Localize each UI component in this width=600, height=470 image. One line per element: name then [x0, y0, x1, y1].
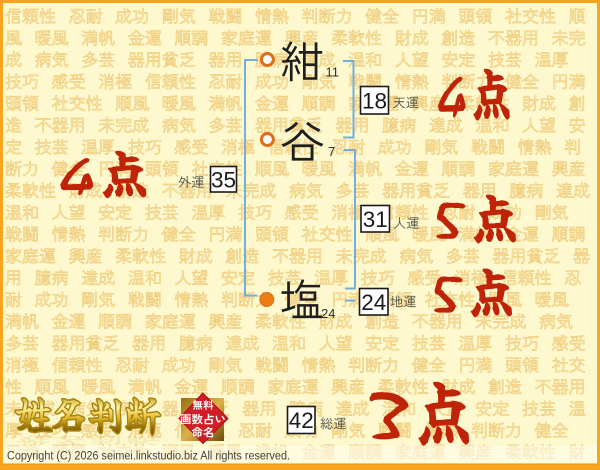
svg-text:11: 11: [326, 65, 340, 80]
svg-text:42: 42: [289, 408, 314, 433]
svg-text:31: 31: [363, 207, 388, 232]
svg-text:Copyright (C) 2026 seimei.link: Copyright (C) 2026 seimei.linkstudio.biz…: [7, 449, 290, 463]
svg-text:24: 24: [361, 290, 386, 315]
svg-text:18: 18: [362, 88, 387, 113]
svg-text:24: 24: [321, 306, 335, 321]
svg-text:35: 35: [211, 167, 236, 192]
svg-text:7: 7: [328, 144, 335, 159]
